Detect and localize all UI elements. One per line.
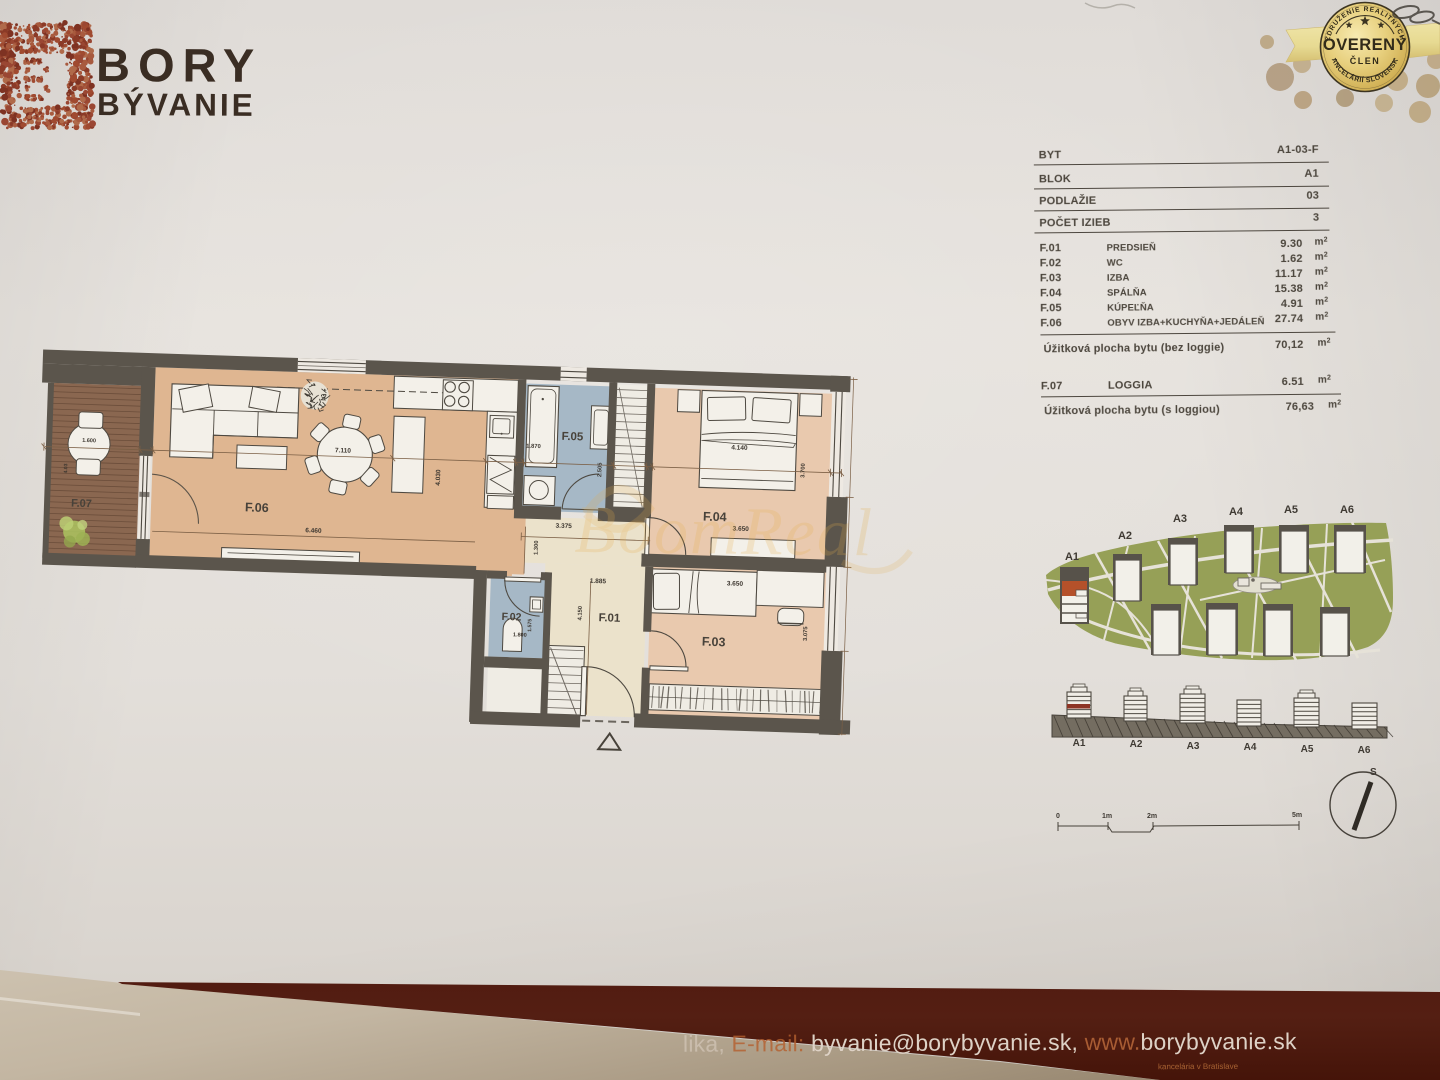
- svg-text:A2: A2: [1118, 530, 1132, 542]
- svg-text:A1: A1: [1073, 738, 1086, 749]
- svg-text:2.505: 2.505: [597, 462, 604, 477]
- svg-text:3.650: 3.650: [727, 580, 744, 588]
- svg-text:7.110: 7.110: [335, 447, 352, 455]
- svg-text:BORY: BORY: [96, 38, 262, 92]
- svg-text:A1: A1: [1065, 551, 1079, 563]
- svg-text:A6: A6: [1340, 504, 1354, 516]
- svg-text:OVERENÝ: OVERENÝ: [1323, 35, 1407, 54]
- svg-text:1m: 1m: [1102, 813, 1112, 820]
- svg-text:F.02: F.02: [501, 611, 521, 624]
- svg-text:0: 0: [1056, 813, 1060, 820]
- svg-text:A3: A3: [1187, 741, 1200, 752]
- svg-text:1.885: 1.885: [590, 578, 607, 586]
- svg-text:A5: A5: [1301, 744, 1314, 755]
- svg-text:BÝVANIE: BÝVANIE: [97, 86, 256, 123]
- svg-text:A4: A4: [1244, 742, 1257, 753]
- svg-text:A4: A4: [1229, 506, 1244, 518]
- svg-text:1.575: 1.575: [527, 619, 533, 632]
- svg-text:F.06: F.06: [245, 500, 269, 515]
- svg-text:F.07: F.07: [71, 498, 92, 511]
- svg-text:4.03: 4.03: [63, 463, 69, 473]
- svg-text:4.150: 4.150: [577, 606, 583, 621]
- svg-text:4.140: 4.140: [731, 444, 748, 452]
- svg-text:A3: A3: [1173, 513, 1187, 525]
- svg-text:F.03: F.03: [702, 635, 726, 650]
- svg-text:6.460: 6.460: [305, 527, 322, 535]
- svg-text:ČLEN: ČLEN: [1350, 55, 1381, 66]
- svg-text:4.030: 4.030: [435, 469, 443, 486]
- svg-text:A6: A6: [1358, 745, 1371, 756]
- svg-text:3.075: 3.075: [803, 626, 810, 641]
- svg-text:3.375: 3.375: [555, 523, 572, 531]
- svg-text:F.01: F.01: [598, 612, 621, 625]
- svg-text:F.05: F.05: [561, 431, 584, 444]
- svg-text:1.870: 1.870: [526, 444, 541, 450]
- svg-text:A5: A5: [1284, 504, 1298, 516]
- svg-text:1.300: 1.300: [534, 540, 540, 555]
- svg-text:2m: 2m: [1147, 813, 1157, 820]
- svg-text:1.600: 1.600: [82, 438, 96, 444]
- svg-text:1.800: 1.800: [513, 632, 527, 638]
- svg-text:S: S: [1370, 767, 1377, 778]
- svg-text:3.700: 3.700: [800, 463, 806, 478]
- svg-text:5m: 5m: [1292, 812, 1302, 819]
- svg-text:A2: A2: [1130, 739, 1143, 750]
